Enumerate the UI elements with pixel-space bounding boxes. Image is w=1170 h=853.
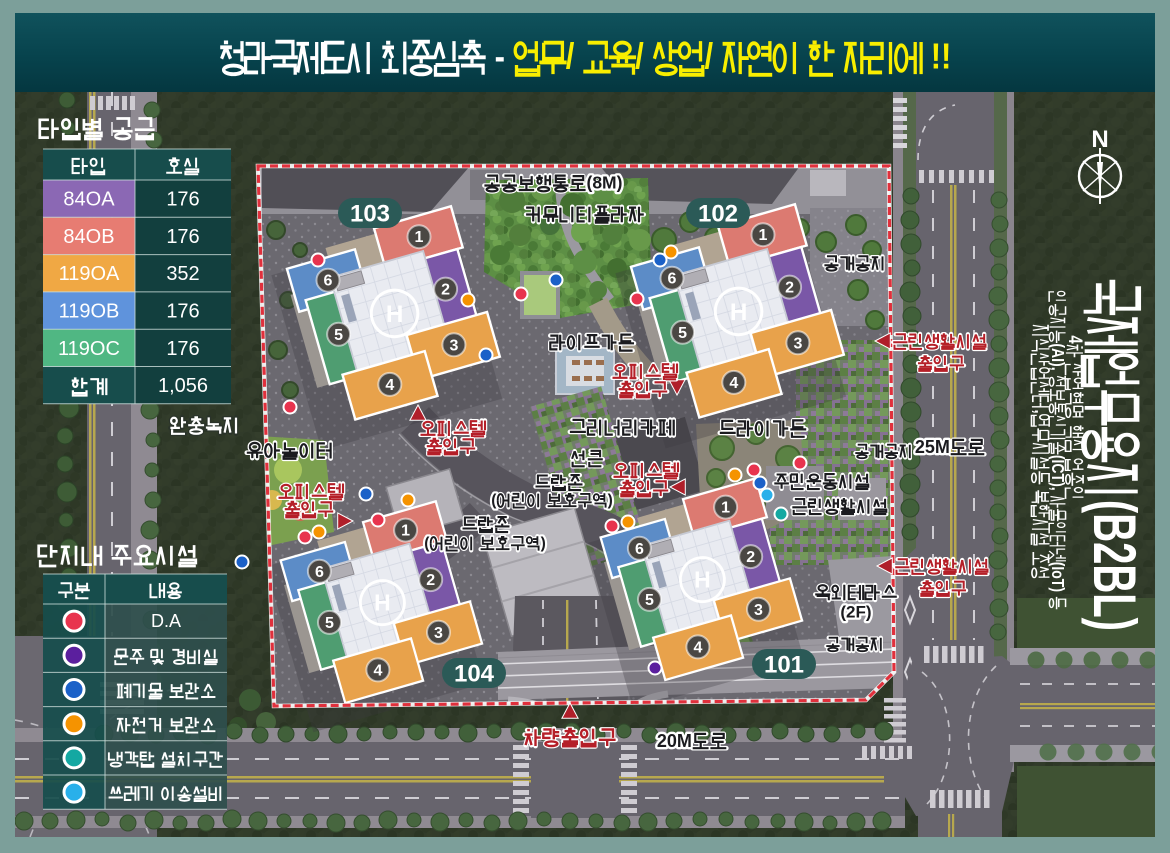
svg-text:(B2BL): (B2BL) bbox=[1081, 500, 1148, 631]
svg-text:!!: !! bbox=[931, 36, 952, 77]
svg-text:1: 1 bbox=[415, 229, 424, 246]
svg-text:176: 176 bbox=[166, 226, 199, 248]
svg-text:H: H bbox=[694, 567, 711, 593]
svg-text:N: N bbox=[1091, 126, 1108, 153]
svg-text:1: 1 bbox=[759, 227, 768, 244]
svg-text:5: 5 bbox=[325, 615, 334, 632]
svg-text:H: H bbox=[386, 301, 403, 328]
svg-text:/: / bbox=[566, 36, 575, 77]
svg-text:5: 5 bbox=[645, 592, 654, 609]
svg-text:D.A: D.A bbox=[151, 611, 181, 631]
svg-text:2: 2 bbox=[426, 572, 435, 589]
svg-text:6: 6 bbox=[315, 564, 324, 581]
svg-text:3: 3 bbox=[434, 625, 443, 642]
svg-text:/: / bbox=[635, 36, 644, 77]
svg-text:-: - bbox=[495, 36, 505, 77]
svg-text:(: ( bbox=[424, 535, 430, 552]
svg-text:352: 352 bbox=[166, 263, 199, 285]
svg-text:(AI),: (AI), bbox=[1048, 343, 1068, 370]
svg-text:): ) bbox=[608, 492, 613, 509]
svg-text:,: , bbox=[1030, 410, 1052, 414]
svg-text:4: 4 bbox=[729, 375, 738, 392]
svg-text:H: H bbox=[374, 590, 391, 616]
svg-text:103: 103 bbox=[350, 201, 390, 228]
svg-text:84OA: 84OA bbox=[63, 189, 115, 211]
svg-text:119OC: 119OC bbox=[58, 338, 120, 360]
svg-text:102: 102 bbox=[698, 201, 738, 228]
svg-text:1: 1 bbox=[401, 523, 410, 540]
svg-text:119OA: 119OA bbox=[59, 263, 120, 285]
svg-text:104: 104 bbox=[454, 661, 495, 688]
svg-text:25M: 25M bbox=[915, 437, 950, 457]
svg-text:5: 5 bbox=[678, 325, 687, 342]
svg-text:176: 176 bbox=[166, 338, 199, 360]
svg-text:176: 176 bbox=[166, 189, 199, 211]
svg-text:3: 3 bbox=[793, 335, 802, 352]
svg-text:5: 5 bbox=[334, 327, 343, 344]
svg-text:(2F): (2F) bbox=[840, 602, 871, 621]
svg-text:2: 2 bbox=[441, 282, 450, 299]
svg-text:101: 101 bbox=[764, 652, 804, 679]
svg-text:4: 4 bbox=[385, 377, 394, 394]
svg-text:4: 4 bbox=[693, 639, 702, 656]
svg-text:2: 2 bbox=[785, 280, 794, 297]
svg-text:176: 176 bbox=[166, 301, 199, 323]
svg-text:(: ( bbox=[491, 492, 497, 509]
svg-text:1,056: 1,056 bbox=[158, 375, 208, 397]
svg-text:H: H bbox=[730, 299, 747, 326]
svg-text:1: 1 bbox=[721, 500, 730, 517]
svg-text:): ) bbox=[541, 535, 546, 552]
svg-text:(8M): (8M) bbox=[587, 173, 623, 193]
svg-text:6: 6 bbox=[668, 271, 677, 288]
svg-text:/: / bbox=[705, 36, 714, 77]
svg-text:2: 2 bbox=[746, 549, 755, 566]
svg-text:(IoT): (IoT) bbox=[1048, 562, 1068, 592]
svg-text:3: 3 bbox=[754, 602, 763, 619]
svg-text:20M: 20M bbox=[657, 731, 692, 751]
svg-text:6: 6 bbox=[635, 541, 644, 558]
svg-text:(ICT),: (ICT), bbox=[1048, 455, 1068, 491]
svg-text:119OB: 119OB bbox=[59, 301, 120, 323]
svg-text:6: 6 bbox=[324, 273, 333, 290]
svg-text:3: 3 bbox=[449, 337, 458, 354]
svg-text:4: 4 bbox=[373, 662, 382, 679]
svg-text:84OB: 84OB bbox=[63, 226, 114, 248]
